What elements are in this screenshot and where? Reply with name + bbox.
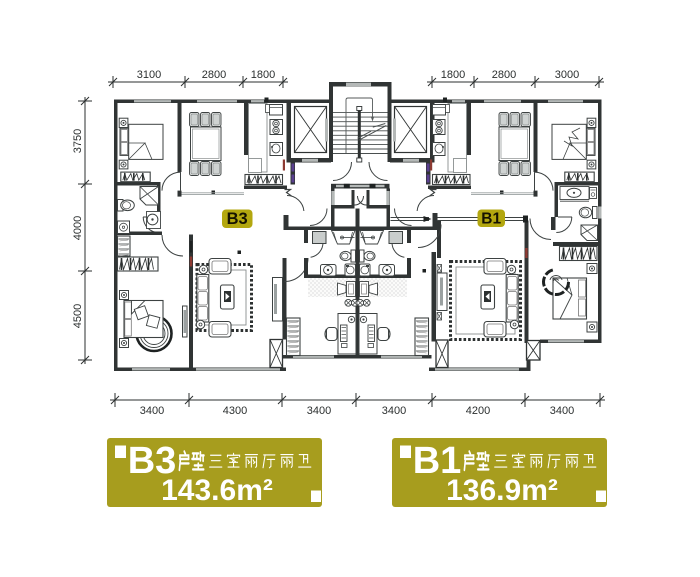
svg-text:136.9m²: 136.9m²: [446, 474, 558, 507]
svg-text:3100: 3100: [137, 69, 161, 81]
svg-text:4500: 4500: [72, 304, 84, 328]
svg-text:4200: 4200: [466, 405, 490, 417]
svg-text:2800: 2800: [202, 69, 226, 81]
svg-text:1800: 1800: [251, 69, 275, 81]
svg-text:4300: 4300: [223, 405, 247, 417]
svg-text:4000: 4000: [72, 216, 84, 240]
svg-text:143.6m²: 143.6m²: [161, 474, 273, 507]
svg-text:3400: 3400: [550, 405, 574, 417]
svg-text:3750: 3750: [72, 129, 84, 153]
svg-text:B3: B3: [227, 210, 248, 228]
svg-text:3000: 3000: [555, 69, 579, 81]
svg-text:1800: 1800: [441, 69, 465, 81]
svg-text:B1: B1: [481, 211, 501, 228]
svg-text:2800: 2800: [492, 69, 516, 81]
svg-text:3400: 3400: [140, 405, 164, 417]
svg-text:3400: 3400: [307, 405, 331, 417]
svg-text:3400: 3400: [382, 405, 406, 417]
